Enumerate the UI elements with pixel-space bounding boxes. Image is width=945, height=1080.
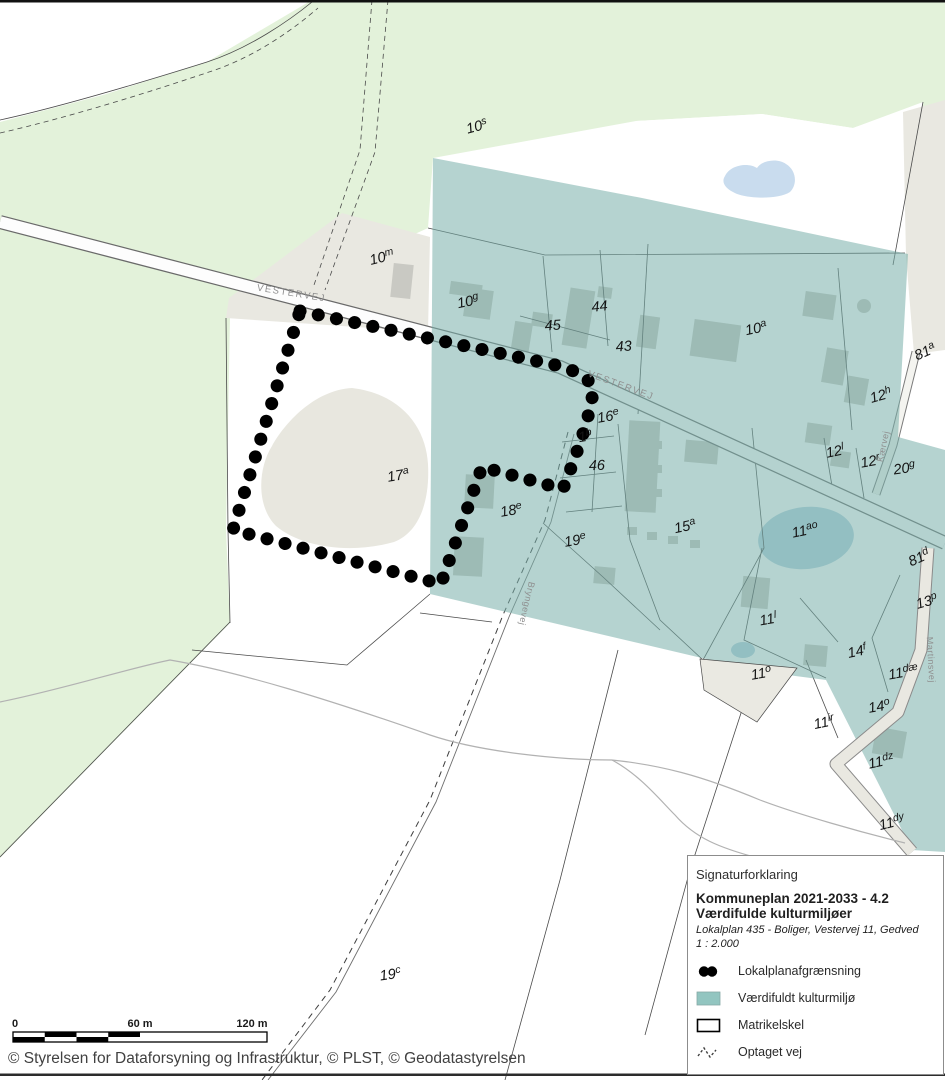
legend-item-optaget-vej: Optaget vej <box>696 1045 935 1060</box>
legend-item-kulturmiljo: Værdifuldt kulturmiljø <box>696 991 935 1006</box>
optaget-vej-line-icon <box>696 1045 722 1060</box>
legend-items: Lokalplanafgrænsning Værdifuldt kulturmi… <box>696 964 935 1060</box>
legend-item-label: Optaget vej <box>738 1045 802 1059</box>
legend-item-label: Matrikelskel <box>738 1018 804 1032</box>
parcel-label: 46 <box>589 458 607 475</box>
top-border <box>0 0 945 3</box>
cadastral-map-view: 10s10m10g44454310a81a12h16e1b12l12r20g46… <box>0 0 945 1080</box>
parcel-label: 44 <box>591 298 609 316</box>
matrikelskel-swatch-icon <box>696 1018 722 1033</box>
scale-label-60: 60 m <box>127 1018 152 1030</box>
legend-item-lokalplan: Lokalplanafgrænsning <box>696 964 935 979</box>
legend-subtitle: Lokalplan 435 - Boliger, Vestervej 11, G… <box>696 924 935 938</box>
legend-theme-heading: Værdifulde kulturmiljøer <box>696 906 935 921</box>
lokalplan-boundary-icon <box>696 964 722 979</box>
attribution-text: © Styrelsen for Dataforsyning og Infrast… <box>8 1050 526 1067</box>
parcel-label: 43 <box>615 338 632 355</box>
scale-label-120: 120 m <box>236 1018 267 1030</box>
legend-item-label: Værdifuldt kulturmiljø <box>738 991 855 1005</box>
legend-item-matrikelskel: Matrikelskel <box>696 1018 935 1033</box>
legend-plan-heading: Kommuneplan 2021-2033 - 4.2 <box>696 891 935 906</box>
kulturmiljo-swatch-icon <box>696 991 722 1006</box>
parcel-label: 45 <box>544 317 562 334</box>
legend-item-label: Lokalplanafgrænsning <box>738 964 861 978</box>
legend-panel: Signaturforklaring Kommuneplan 2021-2033… <box>687 855 944 1075</box>
legend-title: Signaturforklaring <box>696 867 935 882</box>
legend-scale-text: 1 : 2.000 <box>696 938 935 952</box>
scale-label-0: 0 <box>12 1018 18 1030</box>
